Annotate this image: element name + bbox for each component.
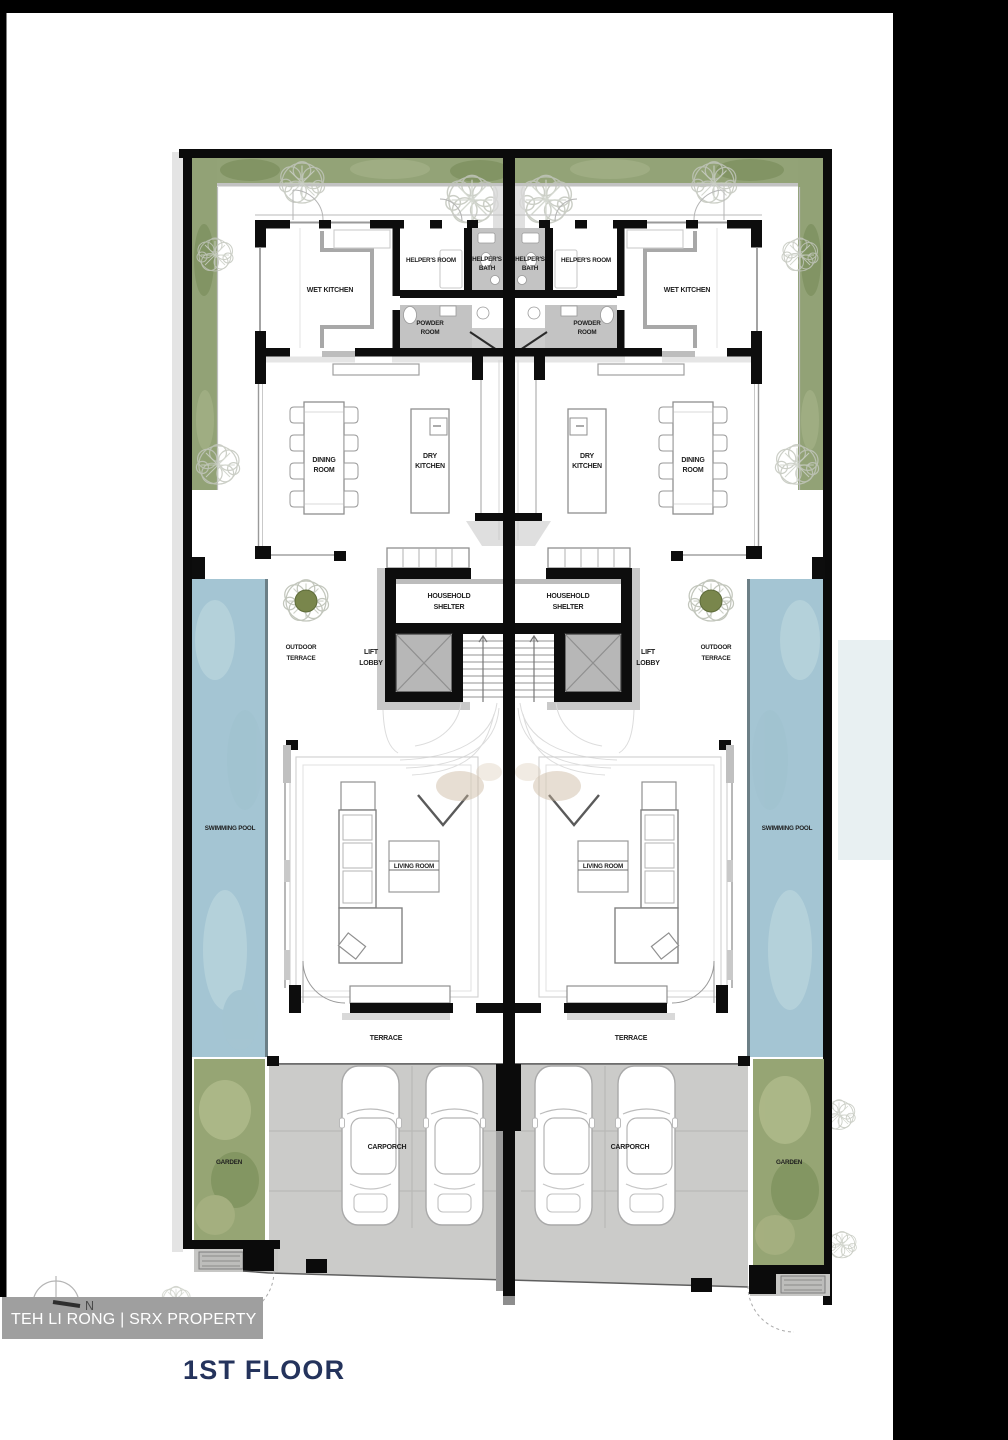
svg-text:TERRACE: TERRACE (370, 1035, 403, 1042)
svg-text:DRY: DRY (580, 453, 594, 460)
svg-text:LOBBY: LOBBY (359, 660, 383, 667)
svg-text:SHELTER: SHELTER (434, 604, 465, 611)
svg-text:LIFT: LIFT (641, 649, 656, 656)
svg-text:WET KITCHEN: WET KITCHEN (307, 287, 354, 294)
svg-text:TERRACE: TERRACE (615, 1035, 648, 1042)
svg-text:TERRACE: TERRACE (286, 655, 315, 662)
svg-text:HOUSEHOLD: HOUSEHOLD (547, 593, 590, 600)
svg-text:GARDEN: GARDEN (216, 1159, 243, 1166)
svg-text:HELPER'S: HELPER'S (472, 256, 502, 263)
svg-text:POWDER: POWDER (573, 320, 601, 327)
svg-text:DINING: DINING (312, 457, 336, 464)
svg-text:KITCHEN: KITCHEN (415, 463, 445, 470)
svg-text:KITCHEN: KITCHEN (572, 463, 602, 470)
svg-text:HELPER'S: HELPER'S (515, 256, 545, 263)
svg-text:OUTDOOR: OUTDOOR (701, 644, 732, 651)
svg-text:N: N (85, 1299, 94, 1313)
svg-text:BATH: BATH (479, 265, 496, 272)
svg-text:ROOM: ROOM (683, 467, 704, 474)
svg-text:LIVING ROOM: LIVING ROOM (394, 863, 434, 870)
svg-text:TERRACE: TERRACE (701, 655, 730, 662)
svg-text:HELPER'S ROOM: HELPER'S ROOM (561, 257, 611, 264)
svg-text:LOBBY: LOBBY (636, 660, 660, 667)
svg-text:HOUSEHOLD: HOUSEHOLD (428, 593, 471, 600)
svg-text:DINING: DINING (681, 457, 705, 464)
svg-text:SWIMMING POOL: SWIMMING POOL (205, 825, 256, 832)
svg-text:CARPORCH: CARPORCH (611, 1144, 650, 1151)
svg-text:CARPORCH: CARPORCH (368, 1144, 407, 1151)
svg-text:DRY: DRY (423, 453, 437, 460)
svg-text:POWDER: POWDER (416, 320, 444, 327)
svg-text:HELPER'S ROOM: HELPER'S ROOM (406, 257, 456, 264)
svg-text:SHELTER: SHELTER (553, 604, 584, 611)
svg-text:GARDEN: GARDEN (776, 1159, 803, 1166)
svg-text:TEH LI RONG | SRX PROPERTY: TEH LI RONG | SRX PROPERTY (11, 1311, 257, 1328)
svg-text:ROOM: ROOM (421, 329, 440, 336)
svg-text:LIVING ROOM: LIVING ROOM (583, 863, 623, 870)
svg-text:ROOM: ROOM (578, 329, 597, 336)
svg-text:WET KITCHEN: WET KITCHEN (664, 287, 711, 294)
svg-text:OUTDOOR: OUTDOOR (286, 644, 317, 651)
svg-text:BATH: BATH (522, 265, 539, 272)
svg-text:LIFT: LIFT (364, 649, 379, 656)
svg-text:ROOM: ROOM (314, 467, 335, 474)
svg-text:1ST FLOOR: 1ST FLOOR (183, 1355, 345, 1385)
svg-text:SWIMMING POOL: SWIMMING POOL (762, 825, 813, 832)
